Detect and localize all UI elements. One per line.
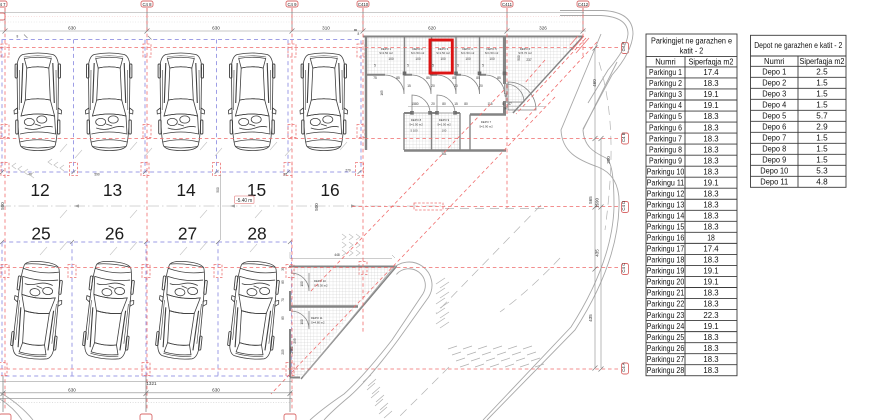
svg-text:Parkingu 3: Parkingu 3: [649, 89, 682, 99]
svg-text:310: 310: [322, 25, 330, 30]
svg-text:590: 590: [94, 173, 100, 177]
svg-text:1.5: 1.5: [816, 155, 828, 165]
svg-text:80: 80: [464, 102, 468, 106]
svg-text:18.3: 18.3: [703, 288, 718, 298]
svg-text:C410: C410: [358, 2, 369, 7]
svg-text:295: 295: [293, 338, 297, 344]
svg-text:12: 12: [30, 180, 49, 200]
svg-text:326: 326: [539, 25, 547, 30]
svg-text:C412: C412: [578, 2, 589, 7]
svg-text:16: 16: [320, 180, 339, 200]
svg-text:18.3: 18.3: [703, 133, 718, 143]
svg-text:19.1: 19.1: [703, 100, 718, 110]
svg-text:DEPO 7: DEPO 7: [481, 120, 492, 124]
svg-text:Parkingu 26: Parkingu 26: [647, 343, 685, 353]
svg-text:Depo 1: Depo 1: [762, 67, 786, 77]
svg-text:630: 630: [68, 387, 76, 392]
svg-text:katit - 2: katit - 2: [680, 45, 704, 55]
svg-text:S=1.50 m2: S=1.50 m2: [437, 123, 451, 127]
svg-text:85: 85: [476, 76, 480, 80]
svg-text:630: 630: [212, 387, 220, 392]
svg-text:18.3: 18.3: [703, 365, 718, 375]
svg-text:18.3: 18.3: [703, 210, 718, 220]
svg-text:Parkingu 18: Parkingu 18: [647, 255, 685, 265]
svg-text:14: 14: [176, 180, 196, 200]
svg-text:Parkingu 15: Parkingu 15: [647, 222, 685, 232]
svg-text:47: 47: [508, 102, 512, 106]
svg-text:Depo 4: Depo 4: [762, 100, 786, 110]
svg-text:17.4: 17.4: [703, 244, 718, 254]
svg-text:460: 460: [592, 79, 597, 87]
svg-text:Siperfaqja m2: Siperfaqja m2: [800, 56, 845, 66]
svg-text:100: 100: [489, 57, 495, 61]
svg-text:C4 E: C4 E: [621, 132, 626, 142]
svg-text:Numri: Numri: [655, 56, 676, 66]
svg-text:Parkingu 24: Parkingu 24: [647, 321, 685, 331]
svg-text:18.3: 18.3: [703, 122, 718, 132]
svg-text:18.3: 18.3: [703, 111, 718, 121]
svg-text:18.3: 18.3: [703, 332, 718, 342]
svg-text:5.7: 5.7: [816, 111, 828, 121]
svg-text:19.1: 19.1: [703, 321, 718, 331]
svg-text:85: 85: [497, 76, 501, 80]
svg-text:80: 80: [442, 102, 446, 106]
svg-text:1.5: 1.5: [816, 100, 828, 110]
svg-text:S=5.70 m2: S=5.70 m2: [518, 51, 532, 55]
svg-text:100: 100: [300, 281, 304, 287]
svg-text:Parkingu 5: Parkingu 5: [649, 111, 682, 121]
svg-text:85: 85: [281, 316, 285, 320]
svg-text:630: 630: [68, 25, 76, 30]
svg-text:19.1: 19.1: [703, 277, 718, 287]
svg-text:19.1: 19.1: [703, 266, 718, 276]
svg-text:5: 5: [482, 64, 484, 68]
svg-text:Parkingu 27: Parkingu 27: [647, 354, 685, 364]
svg-text:Parkingu 13: Parkingu 13: [647, 199, 685, 209]
svg-text:Depo 8: Depo 8: [762, 144, 786, 154]
svg-text:4.8: 4.8: [816, 177, 828, 187]
svg-text:Parkingu 12: Parkingu 12: [647, 188, 685, 198]
svg-text:1.5: 1.5: [816, 133, 828, 143]
svg-text:565: 565: [588, 196, 593, 204]
svg-text:237: 237: [526, 58, 532, 62]
svg-text:75: 75: [373, 76, 377, 80]
svg-text:100: 100: [442, 129, 447, 133]
svg-text:100: 100: [465, 57, 471, 61]
svg-text:S=2.50 m2: S=2.50 m2: [379, 51, 393, 55]
svg-text:Parkingu 8: Parkingu 8: [649, 144, 682, 154]
svg-text:Parkingu 19: Parkingu 19: [647, 266, 685, 276]
svg-text:-5.40 m: -5.40 m: [236, 198, 252, 204]
svg-text:100: 100: [415, 57, 421, 61]
svg-text:S=1.50 m2: S=1.50 m2: [409, 123, 423, 127]
svg-text:C4 8: C4 8: [142, 2, 152, 7]
svg-text:15: 15: [407, 84, 411, 88]
svg-text:448: 448: [334, 253, 340, 257]
svg-text:620: 620: [428, 25, 436, 30]
svg-text:C4 9: C4 9: [287, 2, 297, 7]
svg-text:15: 15: [454, 102, 458, 106]
svg-text:Parkingu 22: Parkingu 22: [647, 299, 685, 309]
svg-text:Parkingu 16: Parkingu 16: [647, 233, 685, 243]
svg-text:500: 500: [314, 203, 319, 211]
svg-text:20: 20: [454, 84, 458, 88]
svg-text:S=4.80 m2: S=4.80 m2: [311, 321, 325, 325]
svg-text:Depo 3: Depo 3: [762, 89, 786, 99]
svg-text:5: 5: [457, 64, 459, 68]
svg-text:20: 20: [479, 84, 483, 88]
svg-text:Parkingu 20: Parkingu 20: [647, 277, 685, 287]
svg-text:Depo 11: Depo 11: [760, 177, 788, 187]
svg-text:100: 100: [388, 57, 394, 61]
svg-text:500: 500: [517, 55, 521, 61]
svg-text:Parkingjet ne garazhen e: Parkingjet ne garazhen e: [651, 35, 732, 45]
svg-text:500: 500: [216, 187, 220, 193]
svg-text:18.3: 18.3: [703, 78, 718, 88]
svg-text:S=1.50 m2: S=1.50 m2: [485, 51, 499, 55]
svg-text:18.3: 18.3: [703, 166, 718, 176]
svg-text:Parkingu 7: Parkingu 7: [649, 133, 682, 143]
svg-text:S=2.90 m2: S=2.90 m2: [479, 125, 493, 129]
svg-text:1590: 1590: [595, 197, 600, 208]
svg-text:Parkingu 10: Parkingu 10: [647, 166, 685, 176]
svg-text:5.3: 5.3: [816, 166, 828, 176]
svg-text:Depo 10: Depo 10: [760, 166, 788, 176]
svg-text:DEPO 11: DEPO 11: [311, 316, 323, 320]
svg-text:25: 25: [31, 224, 50, 244]
svg-text:22.3: 22.3: [703, 310, 718, 320]
svg-text:500: 500: [0, 202, 5, 210]
svg-text:2.9: 2.9: [816, 122, 828, 132]
svg-text:Parkingu 14: Parkingu 14: [647, 210, 685, 220]
svg-text:300: 300: [606, 156, 611, 164]
svg-text:5 100: 5 100: [411, 129, 418, 133]
svg-text:1321: 1321: [146, 381, 157, 386]
svg-text:100: 100: [440, 57, 446, 61]
svg-text:435: 435: [588, 314, 593, 322]
svg-text:20: 20: [431, 84, 435, 88]
svg-text:165: 165: [380, 90, 384, 96]
svg-text:270: 270: [345, 169, 351, 173]
svg-text:5: 5: [407, 64, 409, 68]
svg-text:C4 7: C4 7: [0, 2, 6, 7]
svg-text:C4 D: C4 D: [621, 201, 626, 211]
svg-text:C4 A: C4 A: [621, 362, 626, 371]
svg-text:2.5: 2.5: [816, 67, 828, 77]
svg-text:S=1.50 m2: S=1.50 m2: [411, 51, 425, 55]
svg-text:Depot ne garazhen e katit - 2: Depot ne garazhen e katit - 2: [754, 40, 842, 50]
svg-text:Depo 9: Depo 9: [762, 155, 786, 165]
svg-text:18.3: 18.3: [703, 343, 718, 353]
svg-text:S=1.50 m2: S=1.50 m2: [436, 51, 450, 55]
svg-text:1.5: 1.5: [816, 144, 828, 154]
svg-text:18: 18: [707, 233, 715, 243]
svg-text:5: 5: [502, 102, 504, 106]
svg-text:85: 85: [281, 280, 285, 284]
svg-text:18.3: 18.3: [703, 199, 718, 209]
svg-text:1.5: 1.5: [816, 89, 828, 99]
svg-text:630: 630: [212, 25, 220, 30]
svg-text:C4 F: C4 F: [621, 42, 626, 52]
svg-text:1580: 1580: [411, 102, 418, 106]
svg-text:5: 5: [432, 64, 434, 68]
svg-text:Parkingu 17: Parkingu 17: [647, 244, 685, 254]
svg-text:30: 30: [283, 173, 287, 177]
svg-text:205: 205: [281, 349, 285, 355]
svg-text:20: 20: [431, 102, 435, 106]
svg-text:8: 8: [17, 35, 19, 39]
svg-text:DEPO 8: DEPO 8: [411, 118, 422, 122]
svg-text:DEPO 9: DEPO 9: [439, 118, 450, 122]
svg-text:100: 100: [300, 319, 304, 325]
svg-text:C4 C: C4 C: [621, 263, 626, 273]
svg-text:295: 295: [289, 346, 294, 354]
svg-text:S=1.50 m2: S=1.50 m2: [461, 51, 475, 55]
svg-text:Parkingu 25: Parkingu 25: [647, 332, 685, 342]
svg-text:85: 85: [452, 76, 456, 80]
svg-text:Depo 6: Depo 6: [762, 122, 786, 132]
svg-text:Parkingu 21: Parkingu 21: [647, 288, 685, 298]
svg-text:Parkingu 6: Parkingu 6: [649, 122, 682, 132]
svg-text:Parkingu 11: Parkingu 11: [647, 177, 685, 187]
svg-text:Parkingu 9: Parkingu 9: [649, 155, 682, 165]
svg-text:8: 8: [358, 32, 360, 36]
svg-text:C411: C411: [502, 2, 513, 7]
svg-text:Siperfaqja m2: Siperfaqja m2: [689, 56, 734, 66]
svg-text:70: 70: [281, 298, 285, 302]
svg-text:26: 26: [105, 224, 124, 244]
svg-text:18.3: 18.3: [703, 155, 718, 165]
svg-text:28: 28: [247, 224, 266, 244]
svg-text:27: 27: [178, 224, 197, 244]
svg-text:18.3: 18.3: [703, 299, 718, 309]
svg-text:435: 435: [595, 249, 600, 257]
svg-text:1.5: 1.5: [816, 78, 828, 88]
svg-text:5: 5: [374, 64, 376, 68]
svg-text:18.3: 18.3: [703, 255, 718, 265]
svg-text:Parkingu 23: Parkingu 23: [647, 310, 685, 320]
svg-text:85: 85: [426, 76, 430, 80]
svg-text:Parkingu 1: Parkingu 1: [649, 67, 682, 77]
svg-text:Parkingu 28: Parkingu 28: [647, 365, 685, 375]
svg-text:Depo 2: Depo 2: [762, 78, 786, 88]
svg-text:Parkingu 4: Parkingu 4: [649, 100, 682, 110]
svg-text:17.4: 17.4: [703, 67, 718, 77]
svg-text:13: 13: [103, 180, 122, 200]
svg-text:Depo 5: Depo 5: [762, 111, 786, 121]
svg-text:18.3: 18.3: [703, 354, 718, 364]
svg-text:18.3: 18.3: [703, 222, 718, 232]
svg-text:Numri: Numri: [764, 56, 785, 66]
svg-text:85: 85: [396, 76, 400, 80]
svg-text:Depo 7: Depo 7: [762, 133, 786, 143]
svg-text:Parkingu 2: Parkingu 2: [649, 78, 682, 88]
svg-text:18.3: 18.3: [703, 144, 718, 154]
svg-text:19.1: 19.1: [703, 177, 718, 187]
svg-text:19.1: 19.1: [703, 89, 718, 99]
svg-text:18.3: 18.3: [703, 188, 718, 198]
